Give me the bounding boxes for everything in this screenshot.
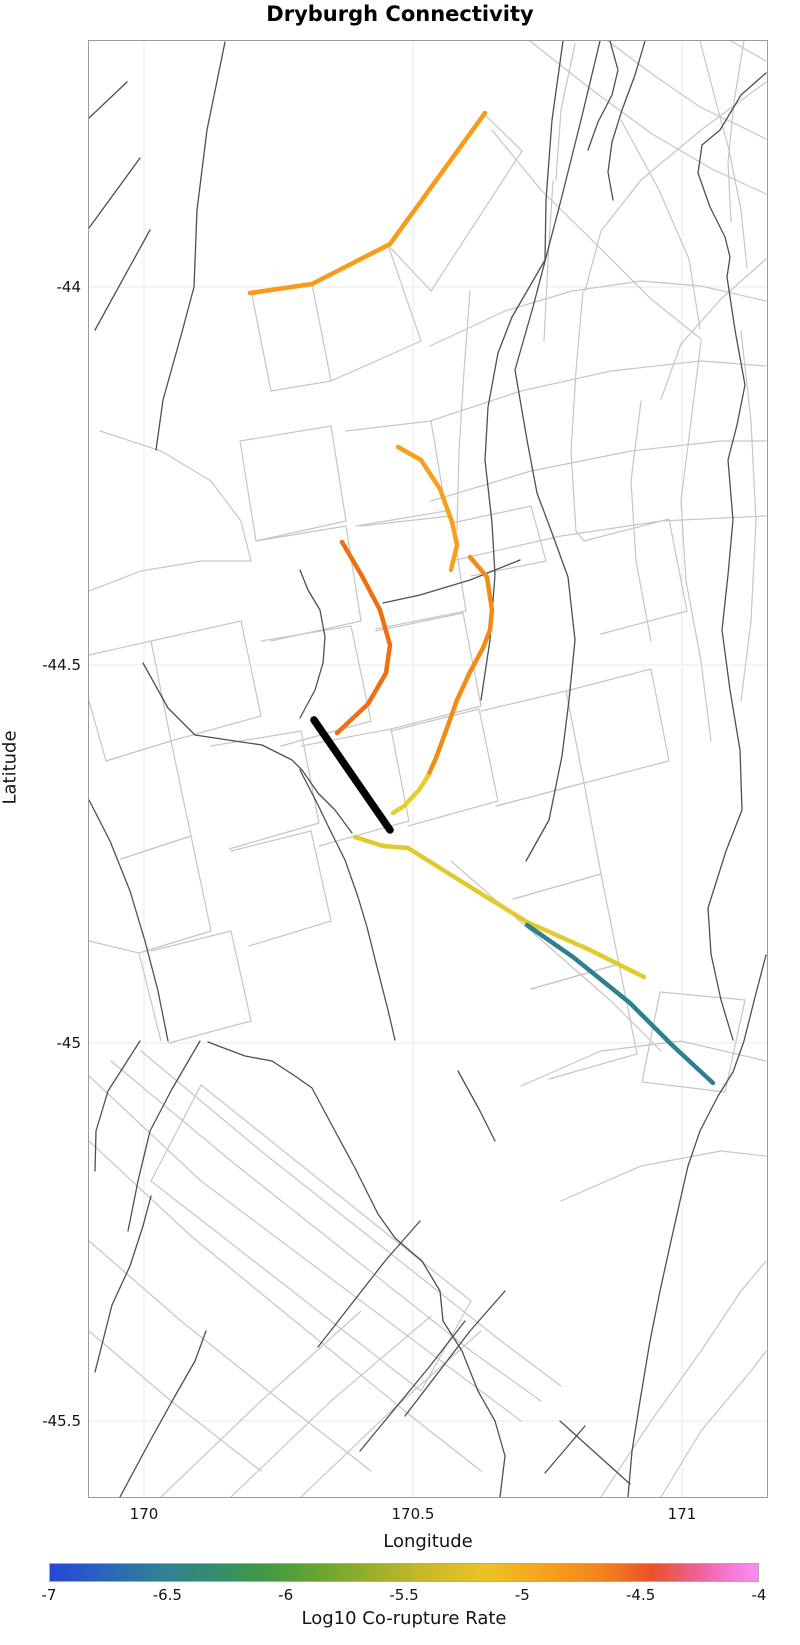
fault-outline-light	[731, 41, 766, 61]
fault-outline-light	[151, 1085, 471, 1391]
colorbar-tick-label: -5.5	[364, 1586, 444, 1604]
corupture-line-west	[337, 542, 390, 733]
fault-outline-light	[121, 836, 211, 953]
fault-outline-light	[100, 431, 251, 561]
fault-trace-dark	[300, 570, 325, 718]
fault-outline-light	[89, 1076, 521, 1421]
fault-outline-light	[530, 41, 766, 194]
fault-outline-light	[601, 1261, 766, 1497]
fault-outline-light	[106, 741, 191, 859]
fault-trace-dark	[588, 41, 618, 150]
chart-title: Dryburgh Connectivity	[0, 2, 800, 26]
fault-trace-dark	[545, 1426, 585, 1473]
fault-outline-light	[561, 1151, 766, 1201]
x-tick-label: 171	[637, 1505, 727, 1523]
colorbar-tick-label: -5	[482, 1586, 562, 1604]
fault-outline-light	[566, 669, 669, 783]
fault-trace-dark	[698, 73, 766, 1040]
fault-outline-light	[430, 361, 766, 421]
fault-outline-light	[631, 401, 651, 641]
fault-outline-light	[89, 1241, 371, 1471]
fault-outline-light	[431, 441, 766, 501]
fault-trace-dark	[89, 82, 127, 118]
fault-outline-light	[496, 783, 601, 899]
fault-outline-light	[661, 1351, 766, 1497]
fault-trace-dark	[156, 42, 225, 450]
fault-outline-light	[231, 831, 331, 946]
colorbar-tick-label: -4	[719, 1586, 799, 1604]
fault-outline-light	[492, 130, 701, 339]
fault-outline-light	[111, 1061, 541, 1401]
fault-outline-light	[211, 731, 319, 849]
fault-trace-dark	[481, 41, 563, 700]
fault-outline-light	[513, 874, 619, 989]
fault-trace-dark	[208, 1042, 505, 1497]
fault-outline-light	[521, 1041, 766, 1086]
map-plot-area	[88, 40, 768, 1498]
fault-outline-light	[728, 41, 744, 222]
fault-trace-dark	[95, 1041, 140, 1171]
x-tick-label: 170	[99, 1505, 189, 1523]
fault-outline-light	[608, 41, 766, 139]
fault-outline-light	[451, 861, 661, 1051]
fault-outline-light	[430, 281, 766, 346]
colorbar-tick-label: -7	[9, 1586, 89, 1604]
fault-outline-light	[681, 341, 711, 741]
y-tick-label: -44.5	[0, 656, 81, 674]
fault-outline-light	[151, 931, 251, 1043]
fault-outline-light	[89, 1331, 261, 1471]
fault-trace-dark	[120, 1331, 206, 1497]
x-axis-label: Longitude	[328, 1531, 528, 1552]
fault-map-svg	[89, 41, 767, 1497]
fault-trace-dark	[458, 1071, 495, 1141]
fault-trace-dark	[560, 1421, 630, 1484]
fault-trace-dark	[89, 158, 140, 228]
colorbar-tick-label: -6	[246, 1586, 326, 1604]
colorbar-tick-label: -4.5	[601, 1586, 681, 1604]
fault-outline-light	[531, 964, 637, 1079]
colorbar	[49, 1563, 759, 1582]
fault-outline-light	[451, 516, 766, 561]
fault-trace-dark	[628, 955, 766, 1497]
fault-outline-light	[231, 1316, 431, 1497]
fault-outline-light	[584, 519, 687, 634]
corupture-line-southeast-yellow	[355, 837, 644, 977]
fault-outline-light	[376, 613, 481, 729]
corupture-line-upper-middle	[398, 447, 457, 570]
fault-trace-dark	[318, 1221, 420, 1347]
y-axis-label: Latitude	[0, 668, 21, 868]
fault-trace-dark	[143, 663, 352, 833]
fault-trace-dark	[89, 800, 168, 1041]
fault-outline-light	[312, 245, 421, 381]
fault-outline-light	[89, 561, 251, 591]
fault-outline-light	[571, 291, 584, 541]
fault-outline-light	[252, 284, 331, 391]
x-tick-label: 170.5	[368, 1505, 458, 1523]
corupture-line-east-yellow-tail	[393, 776, 428, 813]
fault-trace-dark	[95, 230, 150, 330]
fault-outline-light	[661, 259, 766, 399]
fault-outline-light	[452, 506, 546, 576]
y-tick-label: -44	[0, 278, 81, 296]
fault-outline-light	[388, 113, 522, 291]
fault-trace-dark	[95, 1196, 151, 1372]
fault-outline-light	[89, 941, 161, 1041]
fault-outline-light	[240, 426, 346, 541]
colorbar-label: Log10 Co-rupture Rate	[254, 1608, 554, 1629]
fault-outline-light	[89, 641, 171, 761]
colorbar-tick-label: -6.5	[127, 1586, 207, 1604]
y-tick-label: -45	[0, 1034, 81, 1052]
corupture-line-north	[250, 113, 485, 293]
figure: Dryburgh Connectivity Longitude Latitude…	[0, 0, 800, 1645]
y-tick-label: -45.5	[0, 1412, 81, 1430]
fault-outline-light	[621, 120, 700, 329]
